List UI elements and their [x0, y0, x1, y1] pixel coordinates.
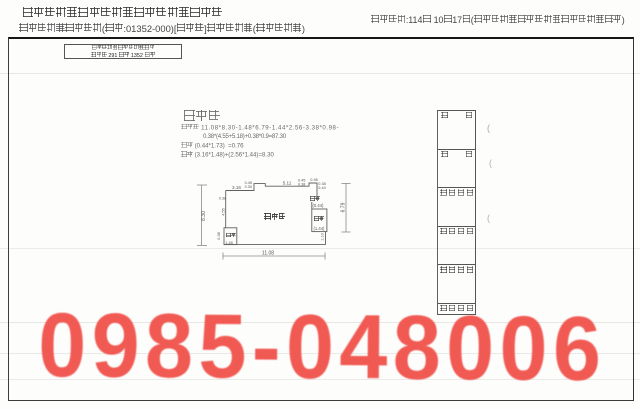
svg-text:0.38: 0.38	[298, 183, 305, 187]
svg-text:0.44: 0.44	[318, 186, 325, 190]
svg-text:0.38: 0.38	[217, 232, 221, 239]
svg-text:0.30: 0.30	[245, 185, 252, 189]
svg-text:1.10: 1.10	[321, 233, 325, 240]
svg-text:1.48: 1.48	[225, 241, 232, 245]
svg-text:6.79: 6.79	[341, 202, 347, 212]
svg-text:8.30: 8.30	[201, 211, 207, 221]
svg-text:0.98: 0.98	[310, 178, 317, 182]
svg-text:5.11: 5.11	[283, 180, 292, 185]
svg-text:4.55: 4.55	[222, 208, 226, 215]
svg-text:(0.44): (0.44)	[313, 203, 325, 208]
svg-text:0.38: 0.38	[219, 197, 226, 201]
svg-text:11.08: 11.08	[262, 251, 274, 257]
svg-text:3.16: 3.16	[232, 185, 241, 190]
svg-text:(1.44): (1.44)	[314, 226, 326, 231]
